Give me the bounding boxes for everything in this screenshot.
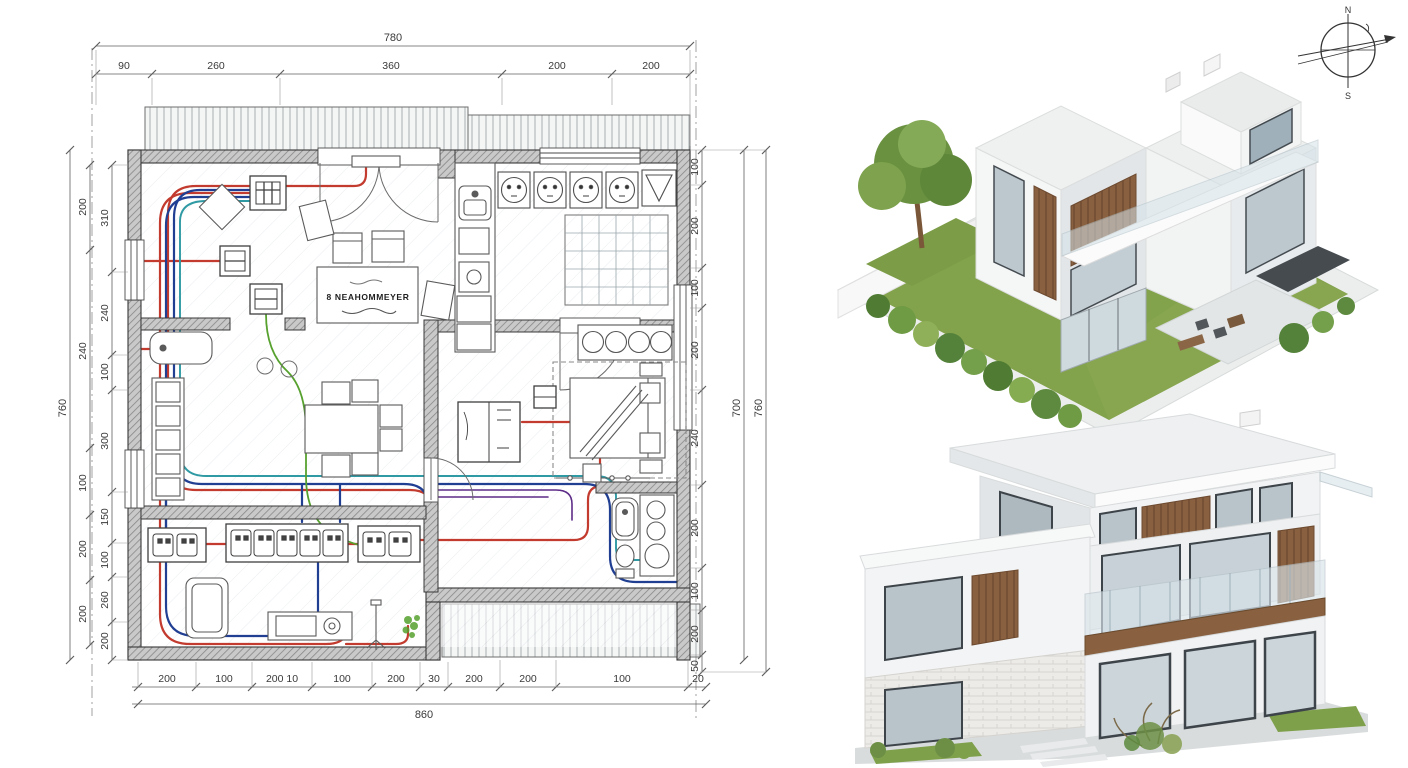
dim-top-total: 780 <box>384 32 402 44</box>
compass-south-label: S <box>1345 91 1351 101</box>
kitchen-counter <box>455 163 495 352</box>
svg-text:200: 200 <box>689 519 701 537</box>
svg-text:20: 20 <box>692 673 704 685</box>
svg-text:100: 100 <box>689 279 701 297</box>
svg-text:100: 100 <box>215 673 233 685</box>
svg-text:200: 200 <box>689 217 701 235</box>
svg-text:240: 240 <box>77 342 89 360</box>
svg-text:200: 200 <box>387 673 405 685</box>
svg-text:200: 200 <box>465 673 483 685</box>
svg-text:200: 200 <box>689 341 701 359</box>
svg-text:200: 200 <box>77 605 89 623</box>
svg-text:310: 310 <box>99 209 111 227</box>
compass: N S <box>1296 6 1406 102</box>
svg-text:240: 240 <box>99 304 111 322</box>
svg-text:760: 760 <box>57 399 69 417</box>
svg-text:200: 200 <box>548 60 566 72</box>
svg-text:200: 200 <box>77 198 89 216</box>
bathroom-right <box>612 495 674 578</box>
svg-text:260: 260 <box>207 60 225 72</box>
svg-text:240: 240 <box>689 429 701 447</box>
svg-text:100: 100 <box>99 363 111 381</box>
svg-text:100: 100 <box>689 582 701 600</box>
svg-text:760: 760 <box>753 399 765 417</box>
svg-text:50: 50 <box>689 660 701 672</box>
svg-text:700: 700 <box>731 399 743 417</box>
socket-row <box>498 170 676 208</box>
svg-text:100: 100 <box>99 551 111 569</box>
svg-text:200: 200 <box>642 60 660 72</box>
svg-text:100: 100 <box>689 158 701 176</box>
svg-text:100: 100 <box>613 673 631 685</box>
stove-burners <box>578 325 672 360</box>
svg-text:200: 200 <box>99 632 111 650</box>
svg-text:360: 360 <box>382 60 400 72</box>
table-label: 8 NEAHOMMEYER <box>327 292 410 302</box>
house-structure <box>860 410 1372 748</box>
svg-text:150: 150 <box>99 508 111 526</box>
svg-text:90: 90 <box>118 60 130 72</box>
dim-bottom-total: 860 <box>415 709 433 721</box>
svg-text:200: 200 <box>77 540 89 558</box>
svg-text:200: 200 <box>158 673 176 685</box>
svg-text:200: 200 <box>689 625 701 643</box>
svg-text:100: 100 <box>77 474 89 492</box>
svg-text:30: 30 <box>428 673 440 685</box>
svg-text:100: 100 <box>333 673 351 685</box>
house-render-perspective <box>850 396 1395 768</box>
svg-text:260: 260 <box>99 591 111 609</box>
svg-text:200: 200 <box>519 673 537 685</box>
svg-text:200 10: 200 10 <box>266 673 298 685</box>
svg-text:300: 300 <box>99 432 111 450</box>
floor-plan: 8 NEAHOMMEYER <box>0 0 800 768</box>
architectural-sheet: 8 NEAHOMMEYER <box>0 0 1408 768</box>
compass-north-label: N <box>1345 6 1352 15</box>
compass-rose <box>1298 14 1396 88</box>
